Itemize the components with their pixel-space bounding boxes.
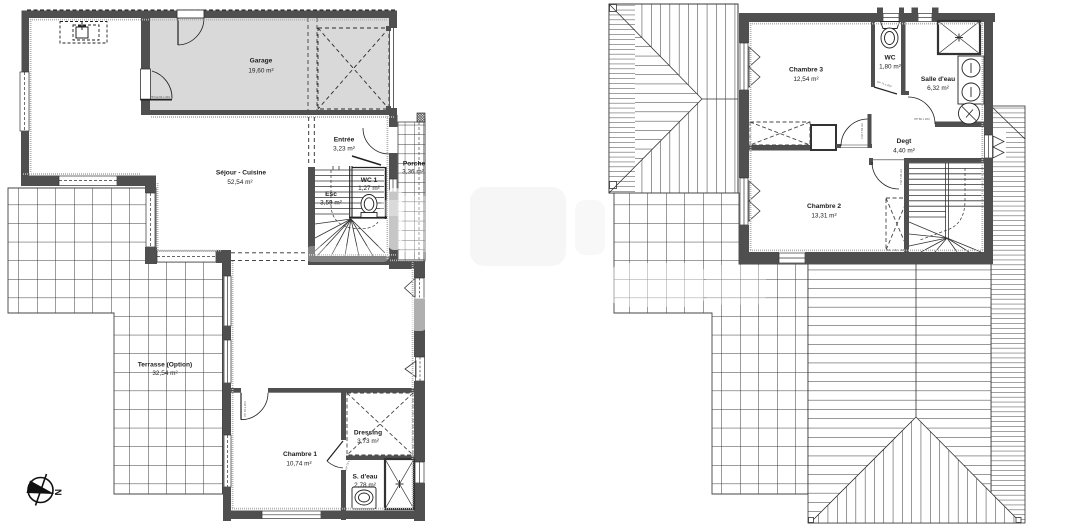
svg-text:Séjour - Cuisine: Séjour - Cuisine	[216, 170, 267, 177]
svg-text:S. d'eau: S. d'eau	[352, 474, 377, 481]
svg-text:4,40 m²: 4,40 m²	[893, 148, 915, 155]
svg-text:PP bat 93 x 204: PP bat 93 x 204	[150, 95, 170, 99]
svg-text:Chambre 3: Chambre 3	[789, 67, 823, 74]
svg-text:Entrée: Entrée	[334, 137, 355, 144]
svg-text:Chambre 2: Chambre 2	[807, 203, 841, 210]
svg-text:1,27 m²: 1,27 m²	[358, 185, 380, 192]
svg-text:52,54 m²: 52,54 m²	[227, 179, 252, 186]
svg-text:PP 82 x 204: PP 82 x 204	[899, 169, 903, 185]
svg-text:PP 82 x 204: PP 82 x 204	[914, 117, 930, 121]
svg-text:13,31 m²: 13,31 m²	[811, 213, 836, 220]
svg-text:WC: WC	[885, 55, 896, 62]
svg-text:Salle d'eau: Salle d'eau	[921, 76, 955, 83]
svg-text:3,36 m²: 3,36 m²	[402, 169, 424, 176]
svg-text:Garage: Garage	[250, 58, 273, 65]
svg-text:Degt: Degt	[897, 138, 912, 145]
svg-text:10,74 m²: 10,74 m²	[286, 461, 311, 468]
svg-text:1,80 m²: 1,80 m²	[879, 64, 901, 71]
svg-text:2,78 m²: 2,78 m²	[354, 482, 376, 489]
svg-text:6,32 m²: 6,32 m²	[927, 85, 949, 92]
svg-text:19,60 m²: 19,60 m²	[248, 68, 273, 75]
svg-text:32,54 m²: 32,54 m²	[152, 370, 177, 377]
svg-text:Porche: Porche	[403, 161, 426, 168]
svg-text:Chambre 1: Chambre 1	[283, 451, 317, 458]
svg-text:PP 83 x 204: PP 83 x 204	[860, 123, 864, 139]
svg-text:WC 1: WC 1	[361, 177, 378, 184]
svg-text:PP 63 x 204: PP 63 x 204	[243, 401, 247, 417]
svg-text:Dressing: Dressing	[354, 430, 382, 437]
svg-text:Esc: Esc	[325, 191, 337, 198]
svg-text:Terrasse (Option): Terrasse (Option)	[138, 362, 192, 369]
svg-text:3,23 m²: 3,23 m²	[333, 146, 355, 153]
svg-text:N: N	[53, 489, 63, 496]
svg-text:3,73 m²: 3,73 m²	[357, 438, 379, 445]
svg-text:3,59 m²: 3,59 m²	[320, 200, 342, 207]
svg-text:12,54 m²: 12,54 m²	[793, 76, 818, 83]
